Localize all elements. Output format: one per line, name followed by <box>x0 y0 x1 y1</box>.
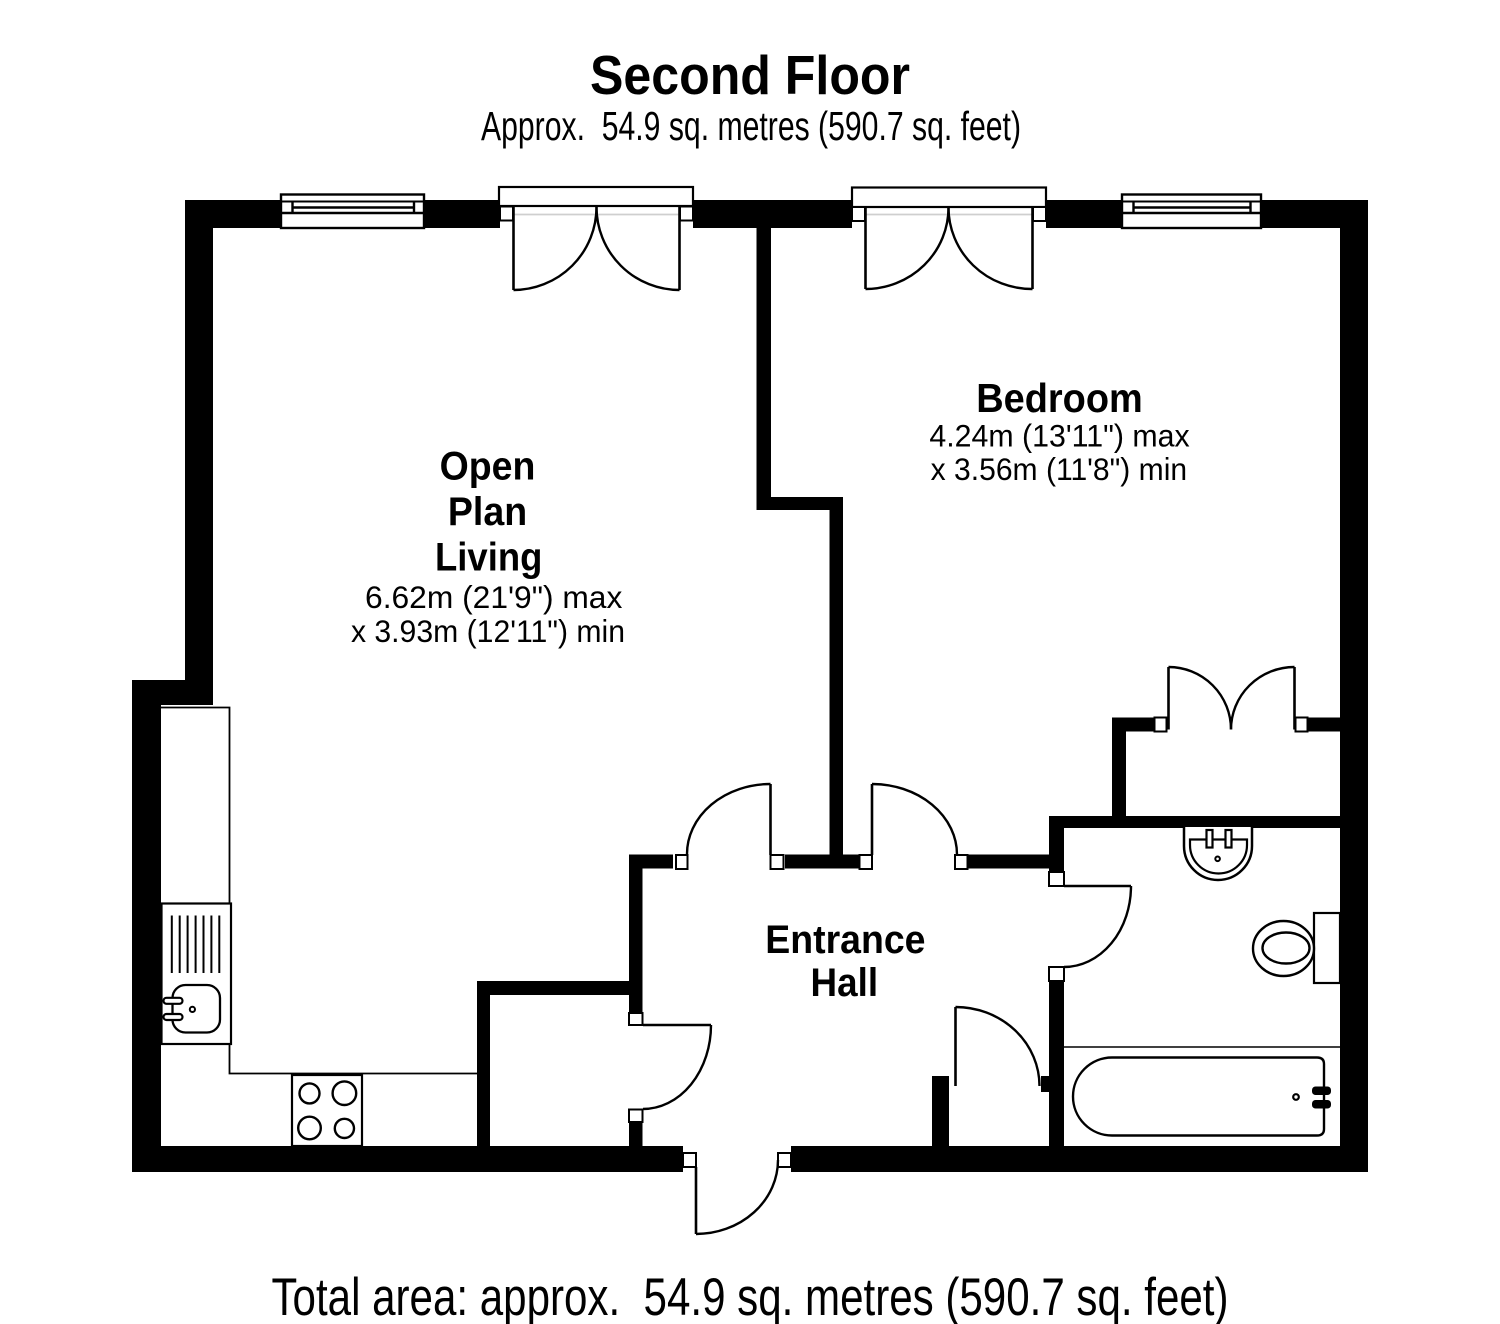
svg-text:4.24m (13'11") max: 4.24m (13'11") max <box>929 418 1190 454</box>
svg-text:Total area: approx. 54.9 sq.: Total area: approx. 54.9 sq. metres (590… <box>272 1268 1229 1324</box>
svg-text:Open: Open <box>440 445 536 489</box>
svg-text:6.62m (21'9") max: 6.62m (21'9") max <box>365 579 623 615</box>
svg-text:Approx. 54.9 sq. metres (590.: Approx. 54.9 sq. metres (590.7 sq. feet) <box>481 103 1021 149</box>
svg-text:Hall: Hall <box>811 961 879 1005</box>
svg-text:x 3.56m (11'8") min: x 3.56m (11'8") min <box>931 451 1188 487</box>
svg-text:Second Floor: Second Floor <box>590 44 910 106</box>
svg-text:Plan: Plan <box>448 490 527 534</box>
svg-text:Bedroom: Bedroom <box>976 375 1143 421</box>
svg-text:Entrance: Entrance <box>765 918 925 962</box>
svg-text:Living: Living <box>435 536 542 580</box>
svg-text:x 3.93m (12'11") min: x 3.93m (12'11") min <box>351 613 625 649</box>
